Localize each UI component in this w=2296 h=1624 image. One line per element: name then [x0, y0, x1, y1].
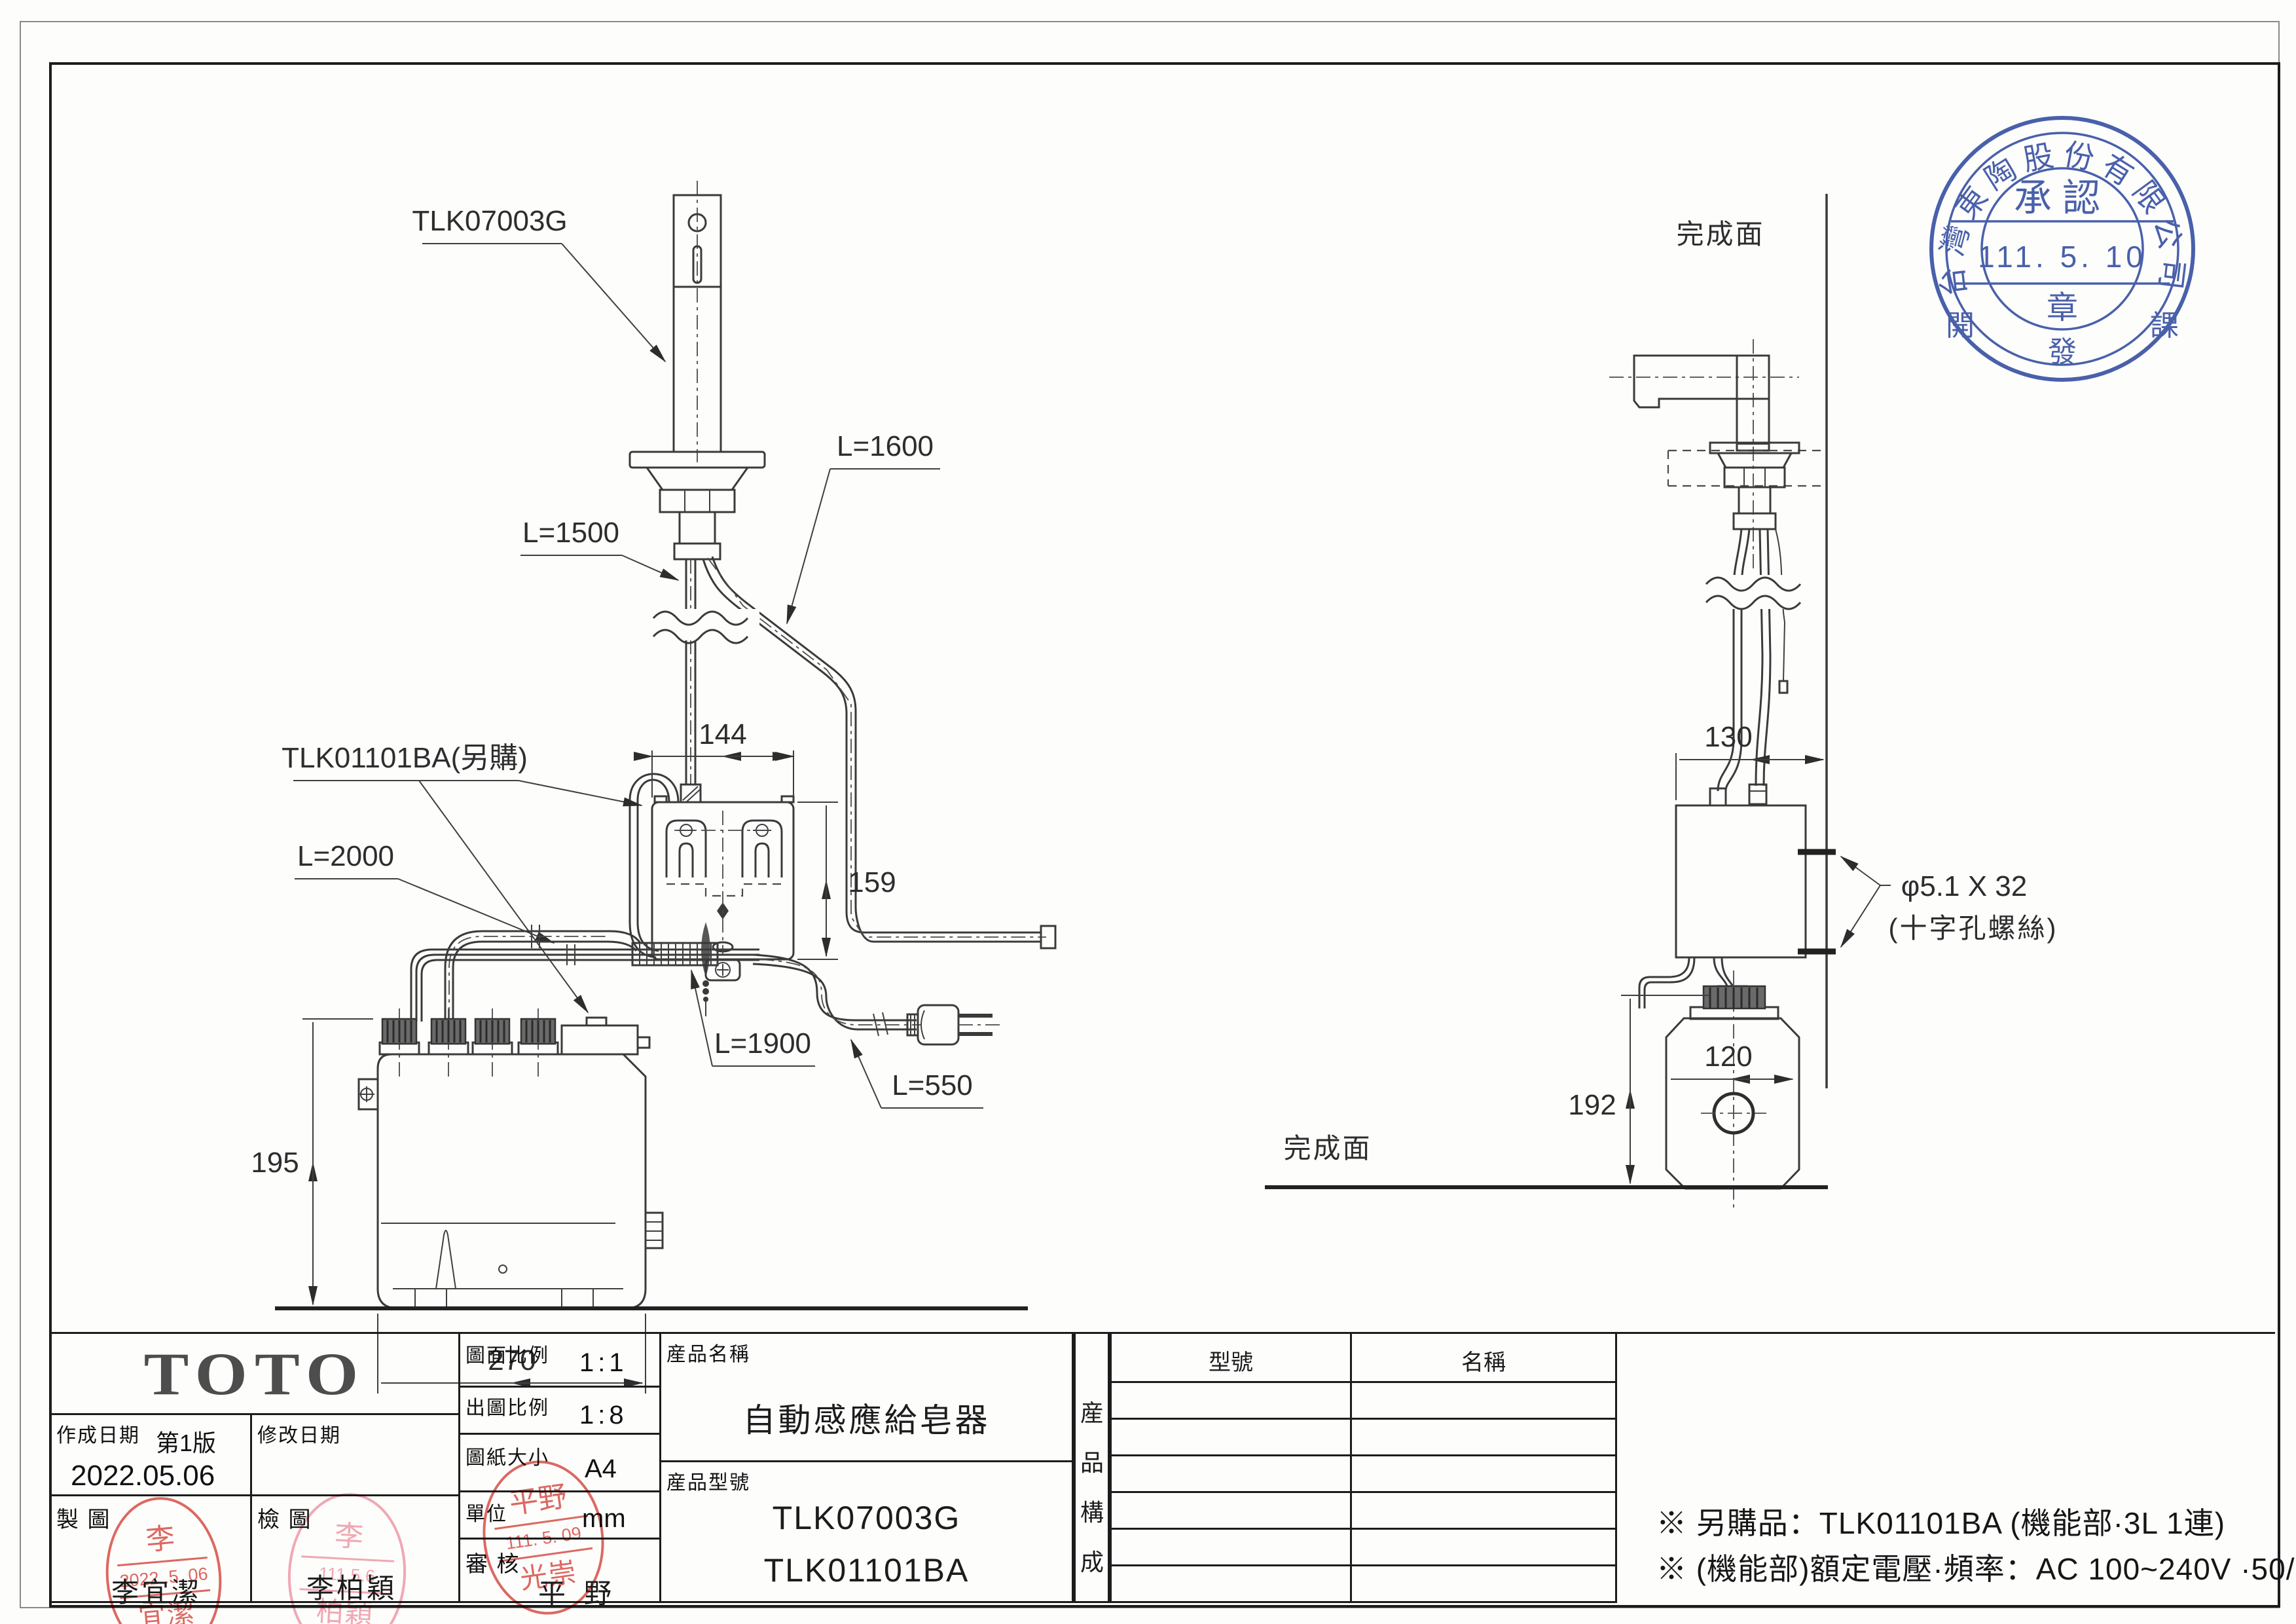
scale-value: 1:1: [579, 1348, 628, 1378]
table-row: [1350, 1381, 1617, 1420]
label-bundle-1900: L=1900: [691, 970, 815, 1066]
controller-box-side: [1676, 784, 1836, 957]
side-view: 完成面: [1265, 194, 2058, 1208]
composition-char-1: 産: [1072, 1394, 1112, 1428]
drafter-signature: 李宜潔: [111, 1570, 202, 1610]
created-date-label: 作成日期: [56, 1419, 140, 1448]
screw-spec-line2: (十字孔螺絲): [1889, 913, 2058, 944]
screw-spec-line1: φ5.1 X 32: [1901, 870, 2027, 902]
label-controller: TLK01101BA(另購): [282, 742, 642, 1012]
keyhole-bracket-left: [666, 821, 706, 877]
dim-195-text: 195: [251, 1147, 299, 1179]
table-row: [1350, 1418, 1617, 1456]
table-col-model-label: 型號: [1112, 1344, 1350, 1376]
product-model-label: 産品型號: [666, 1466, 750, 1495]
keyhole-bracket-right: [742, 821, 782, 877]
product-name-cell: 産品名稱 自動感應給皂器: [659, 1332, 1074, 1462]
product-model-2: TLK01101BA: [661, 1551, 1072, 1589]
soap-tank-front: [359, 1008, 663, 1308]
note-line-1: ※ 另購品：TLK01101BA (機能部·3L 1連): [1656, 1500, 2225, 1543]
plot-scale-cell: 出圖比例 1:8: [458, 1386, 661, 1435]
cord-550-text: L=550: [892, 1069, 973, 1101]
dim-159-text: 159: [848, 866, 896, 898]
label-cable-1600: L=1600: [787, 430, 940, 623]
composition-strip: 産 品 構 成: [1074, 1332, 1110, 1603]
cable-1500-text: L=1500: [522, 517, 619, 549]
finished-surface-bottom-label: 完成面: [1283, 1133, 1372, 1164]
stamp-seal-char: 章: [2047, 291, 2078, 325]
table-row: [1110, 1564, 1352, 1603]
drawing-sheet: 144 159 TLK07003G L=1600: [0, 0, 2296, 1624]
bundle-1900-text: L=1900: [714, 1027, 811, 1060]
controller-part-number: TLK01101BA(另購): [282, 742, 528, 774]
table-row: [1350, 1528, 1617, 1566]
checker-stamp-top: 李: [334, 1521, 364, 1551]
power-plug-icon: [907, 1005, 1004, 1044]
stamp-dept-center: 發: [2048, 336, 2077, 368]
dim-tank-height-195: 195: [251, 1019, 373, 1304]
approval-stamp: 台灣東陶股份有限公司 承認 111. 5. 10 章 開 發 課: [1931, 118, 2193, 380]
table-col-name-label: 名稱: [1352, 1344, 1615, 1376]
paper-size-value: A4: [585, 1454, 617, 1484]
composition-char-4: 成: [1072, 1543, 1112, 1578]
stamp-dept-right: 課: [2150, 310, 2179, 342]
product-model-cell: 産品型號 TLK07003G TLK01101BA: [659, 1460, 1074, 1603]
reviewer-stamp-top: 平野: [507, 1482, 568, 1519]
cable-1600-text: L=1600: [837, 430, 934, 462]
title-block-top-line: [1615, 1332, 2275, 1334]
product-name-label: 産品名稱: [666, 1338, 750, 1367]
stamp-dept-left: 開: [1946, 310, 1975, 342]
composition-char-3: 構: [1072, 1494, 1112, 1528]
table-row: [1110, 1491, 1352, 1530]
created-date-value: 2022.05.06: [71, 1460, 215, 1492]
table-header-name: 名稱: [1350, 1332, 1617, 1383]
front-view: 144 159 TLK07003G L=1600: [251, 181, 1055, 1393]
version-text: 第1版: [156, 1424, 216, 1458]
scale-cell: 圖面比例 1:1: [458, 1332, 661, 1388]
dim-tank-height-192: 192: [1568, 995, 1710, 1183]
screw-spec-label: φ5.1 X 32 (十字孔螺絲): [1841, 857, 2058, 947]
product-name: 自動感應給皂器: [661, 1394, 1072, 1441]
composition-char-2: 品: [1072, 1444, 1112, 1478]
note-line-2: ※ (機能部)額定電壓·頻率：AC 100~240V ·50/60Hz: [1656, 1545, 2296, 1589]
plot-scale-label: 出圖比例: [465, 1392, 549, 1420]
created-date-cell: 作成日期 第1版 2022.05.06: [49, 1413, 252, 1496]
table-row: [1110, 1381, 1352, 1420]
label-spout: TLK07003G: [412, 205, 665, 361]
table-row: [1350, 1491, 1617, 1530]
table-row: [1350, 1564, 1617, 1603]
table-header-model: 型號: [1110, 1332, 1352, 1383]
checker-signature: 李柏穎: [306, 1566, 397, 1606]
scale-label: 圖面比例: [465, 1339, 549, 1368]
table-row: [1110, 1454, 1352, 1493]
toto-logo: TOTO: [27, 1339, 483, 1409]
label-cord-550: L=550: [851, 1040, 983, 1108]
hose-2000: [445, 925, 640, 1022]
soap-tank-side: [1666, 970, 1799, 1208]
table-row: [1110, 1418, 1352, 1456]
stamp-date: 111. 5. 10: [1978, 240, 2147, 274]
dim-144-text: 144: [699, 718, 746, 750]
spout-part-number: TLK07003G: [412, 205, 567, 237]
dim-192-text: 192: [1568, 1089, 1616, 1121]
logo-cell: TOTO: [49, 1332, 460, 1415]
hose-2000-text: L=2000: [297, 840, 394, 872]
modified-date-label: 修改日期: [257, 1419, 341, 1448]
spout-front: [630, 181, 765, 559]
table-right-edge: [1615, 1332, 1617, 1603]
plot-scale-value: 1:8: [579, 1401, 628, 1430]
stamp-divider: [302, 1555, 394, 1562]
tank-caps: [380, 1008, 558, 1079]
label-cable-1500: L=1500: [520, 517, 678, 580]
dim-120-text: 120: [1704, 1041, 1752, 1073]
spout-side: [1609, 339, 1825, 572]
label-hose-2000: L=2000: [295, 840, 554, 943]
dim-tank-width-120: 120: [1671, 1041, 1793, 1079]
table-row: [1110, 1528, 1352, 1566]
dim-130-text: 130: [1704, 721, 1752, 753]
drafter-stamp-top: 李: [145, 1524, 176, 1555]
stamp-title: 承認: [2014, 177, 2111, 219]
finished-surface-top-label: 完成面: [1676, 219, 1764, 249]
reviewer-stamp-date: 111. 5. 09: [505, 1524, 583, 1553]
modified-date-cell: 修改日期: [250, 1413, 460, 1496]
reviewer-signature: 平野: [538, 1572, 630, 1612]
product-model-1: TLK07003G: [661, 1499, 1072, 1537]
drafted-label: 製 圖: [56, 1502, 111, 1534]
table-row: [1350, 1454, 1617, 1493]
